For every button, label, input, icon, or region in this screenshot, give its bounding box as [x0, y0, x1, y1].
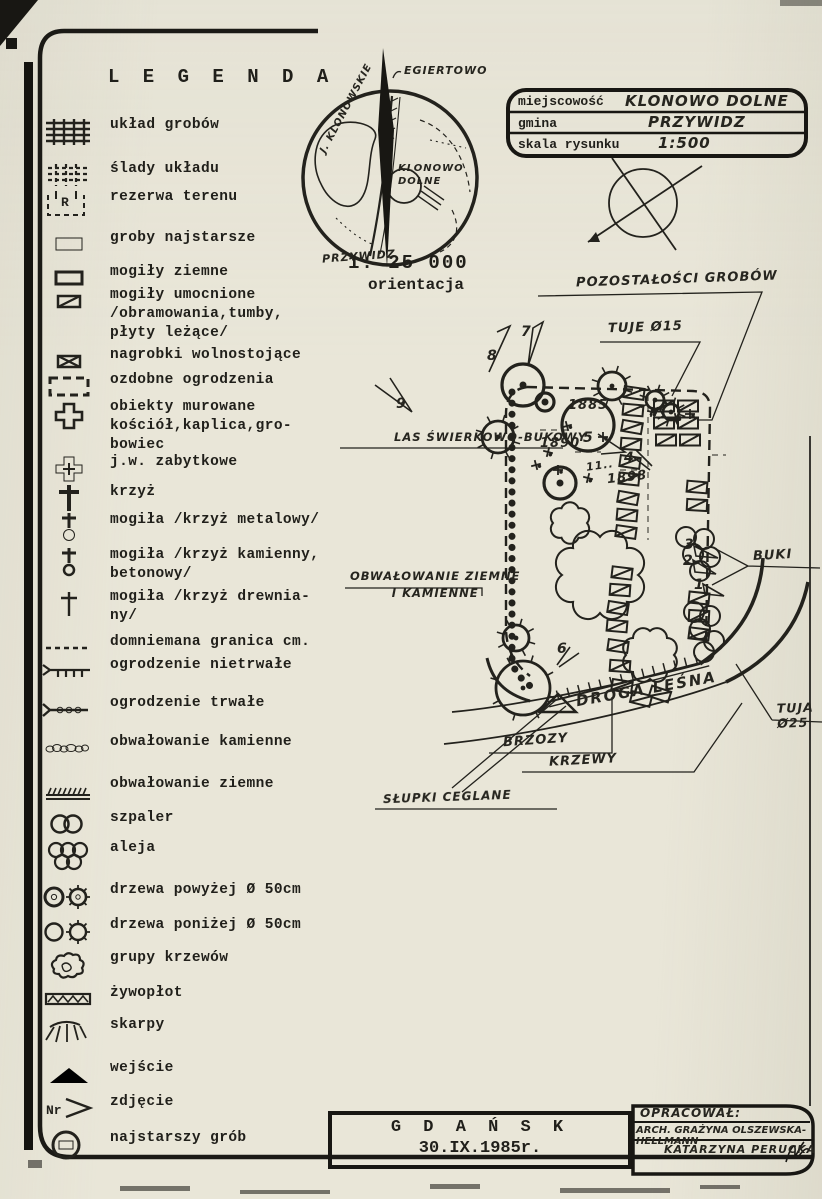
egiertowo-arrow — [393, 72, 401, 78]
legend-item: R rezerwa terenu — [38, 186, 237, 220]
place-label: miejscowość — [518, 94, 604, 109]
reinforced-grave-icon — [38, 284, 102, 318]
road-line — [370, 96, 392, 256]
legend-item: grupy krzewów — [38, 947, 228, 987]
legend-item: mogiła /krzyż drewnia- ny/ — [38, 586, 310, 626]
legend-item-label: groby najstarsze — [110, 229, 256, 248]
photo-marker-1: 1 — [694, 577, 705, 593]
plan-label-buki: BUKI — [753, 547, 793, 564]
plan-label-krzewy: KRZEWY — [549, 751, 618, 770]
shrub-groups-icon — [38, 947, 102, 987]
legend-item: żywopłot — [38, 982, 183, 1016]
gmina-label: gmina — [518, 116, 557, 131]
legend-item: mogiły umocnione /obramowania,tumby, pły… — [38, 284, 283, 343]
orientation-egiertowo-label: EGIERTOWO — [404, 64, 487, 77]
legend-title: L E G E N D A — [108, 66, 334, 88]
footer-credit-header: OPRACOWAŁ: — [640, 1106, 741, 1120]
photo-marker-7: 7 — [521, 324, 532, 340]
legend-item: najstarszy grób — [38, 1127, 247, 1163]
legend-item-label: najstarszy grób — [110, 1129, 247, 1148]
trees-under-50cm-icon — [38, 914, 102, 950]
legend-item: ogrodzenie nietrwałe — [38, 654, 292, 688]
legend-item-label: ogrodzenie trwałe — [110, 694, 265, 713]
legend-item-label: skarpy — [110, 1016, 165, 1035]
legend-item: wejście — [38, 1057, 174, 1091]
legend-item-label: ślady układu — [110, 160, 219, 179]
tree-clouds — [551, 502, 677, 682]
legend-item: groby najstarsze — [38, 227, 256, 261]
legend-item: ogrodzenie trwałe — [38, 692, 265, 726]
legend-item-label: mogiły ziemne — [110, 263, 228, 282]
legend-item-label: mogiła /krzyż metalowy/ — [110, 511, 319, 530]
legend-item-label: mogiła /krzyż kamienny, betonowy/ — [110, 546, 319, 584]
legend-item-label: grupy krzewów — [110, 949, 228, 968]
photo-marker-9: 9 — [396, 396, 407, 412]
conifer-tree-symbols — [476, 366, 685, 721]
oldest-grave-icon — [38, 1127, 102, 1163]
legend-item-label: mogiły umocnione /obramowania,tumby, pły… — [110, 286, 283, 343]
legend-item: mogiła /krzyż kamienny, betonowy/ — [38, 544, 319, 584]
legend-item: aleja — [38, 837, 156, 877]
legend-item-label: drzewa powyżej Ø 50cm — [110, 881, 301, 900]
leader-lines — [340, 292, 822, 809]
plan-year-1885: 1885 — [568, 398, 608, 413]
plan-label-brzozy: BRZOZY — [503, 731, 569, 751]
photo-marker-3: 3 — [684, 537, 695, 553]
legend-item-label: żywopłot — [110, 984, 183, 1003]
legend-item-label: drzewa poniżej Ø 50cm — [110, 916, 301, 935]
plan-label-slupki: SŁUPKI CEGLANE — [383, 788, 512, 806]
legend-item-label: szpaler — [110, 809, 174, 828]
place-value: KLONOWO DOLNE — [625, 92, 789, 110]
scanned-cemetery-plan-sheet: { "legend": { "title": "L E G E N D A", … — [0, 0, 822, 1199]
masonry-object-icon — [38, 396, 102, 440]
legend-item-label: aleja — [110, 839, 156, 858]
legend-item-label: obiekty murowane kościół,kaplica,gro- bo… — [110, 398, 292, 455]
legend-item-label: domniemana granica cm. — [110, 633, 310, 652]
plan-label-droga: DROGA LEŚNA — [575, 668, 719, 711]
north-arrow — [378, 48, 394, 268]
site-plan — [340, 292, 822, 809]
metal-cross-grave-icon — [38, 509, 102, 547]
temporary-fence-icon — [38, 654, 102, 688]
photo-marker-wedges — [375, 322, 724, 667]
orientation-scale: 1: 25 000 — [348, 252, 469, 274]
left-edge-bar — [24, 62, 33, 1150]
legend-item: Nr zdjęcie — [38, 1091, 174, 1125]
photo-icon: Nr — [38, 1091, 102, 1125]
grave-grid-icon — [38, 114, 102, 148]
earth-embankment-icon — [38, 773, 102, 807]
legend-item-label: obwałowanie kamienne — [110, 733, 292, 752]
plan-label-pozostalosci: POZOSTAŁOŚCI GROBÓW — [576, 268, 778, 290]
legend-item: szpaler — [38, 807, 174, 841]
photo-marker-8: 8 — [487, 348, 498, 364]
entrance-icon — [38, 1057, 102, 1091]
oldest-graves-icon — [38, 227, 102, 261]
footer-date: 30.IX.1985r. — [330, 1139, 630, 1158]
gmina-value: PRZYWIDZ — [648, 113, 746, 131]
scale-value: 1:500 — [658, 134, 711, 152]
alley-icon — [38, 837, 102, 877]
orientation-caption: orientacja — [368, 276, 464, 294]
entrance-triangle — [540, 694, 576, 712]
legend-item-label: j.w. zabytkowe — [110, 453, 237, 472]
reserve-area-icon: R — [38, 186, 102, 220]
legend-item-label: nagrobki wolnostojące — [110, 346, 301, 365]
legend-item-label: mogiła /krzyż drewnia- ny/ — [110, 588, 310, 626]
hedge-icon — [38, 982, 102, 1016]
slopes-icon — [38, 1014, 102, 1054]
legend-item: układ grobów — [38, 114, 219, 148]
trees-over-50cm-icon — [38, 879, 102, 915]
legend-item-label: ozdobne ogrodzenia — [110, 371, 274, 390]
footer-credit-line2: KATARZYNA PERUCKA — [664, 1143, 816, 1156]
lake-outline — [315, 122, 376, 206]
legend-item: obwałowanie kamienne — [38, 731, 292, 765]
plan-year-1898: 1898 — [606, 468, 648, 487]
tree-row-icon — [38, 807, 102, 841]
legend-item: obwałowanie ziemne — [38, 773, 274, 807]
footer-city: G D A Ń S K — [330, 1118, 630, 1137]
stone-embankment-icon — [38, 731, 102, 765]
photo-marker-2: 2 — [683, 553, 694, 569]
plan-label-obwalowanie: OBWAŁOWANIE ZIEMNE I KAMIENNE — [350, 568, 520, 602]
legend-item-label: ogrodzenie nietrwałe — [110, 656, 292, 675]
wooden-cross-grave-icon — [38, 586, 102, 620]
legend-item: drzewa powyżej Ø 50cm — [38, 879, 301, 915]
stone-cross-grave-icon — [38, 544, 102, 582]
legend-item: skarpy — [38, 1014, 165, 1054]
legend-item-label: układ grobów — [110, 116, 219, 135]
svg-text:Nr: Nr — [46, 1103, 62, 1118]
scale-label: skala rysunku — [518, 137, 619, 152]
legend-item-label: obwałowanie ziemne — [110, 775, 274, 794]
plan-label-tuja25: TUJA Ø25 — [776, 699, 822, 731]
road-crosshatch — [382, 98, 398, 144]
compass-symbol — [588, 158, 702, 250]
plan-year-1890: 1890 — [540, 436, 580, 451]
scan-corner-mark — [0, 0, 38, 46]
legend-item: drzewa poniżej Ø 50cm — [38, 914, 301, 950]
legend-item-label: zdjęcie — [110, 1093, 174, 1112]
photo-marker-6: 6 — [557, 641, 568, 657]
orientation-village-label: KLONOWO DOLNE — [398, 162, 464, 188]
legend-item: obiekty murowane kościół,kaplica,gro- bo… — [38, 396, 292, 455]
svg-text:R: R — [61, 195, 69, 210]
legend-item-label: krzyż — [110, 483, 156, 502]
permanent-fence-icon — [38, 692, 102, 726]
photo-marker-4: 4 — [624, 450, 635, 466]
plan-label-tuje15: TUJE Ø15 — [608, 319, 683, 337]
legend-item: mogiła /krzyż metalowy/ — [38, 509, 319, 547]
legend-item-label: wejście — [110, 1059, 174, 1078]
photo-marker-5: 5 — [583, 430, 594, 446]
legend-item-label: rezerwa terenu — [110, 188, 237, 207]
